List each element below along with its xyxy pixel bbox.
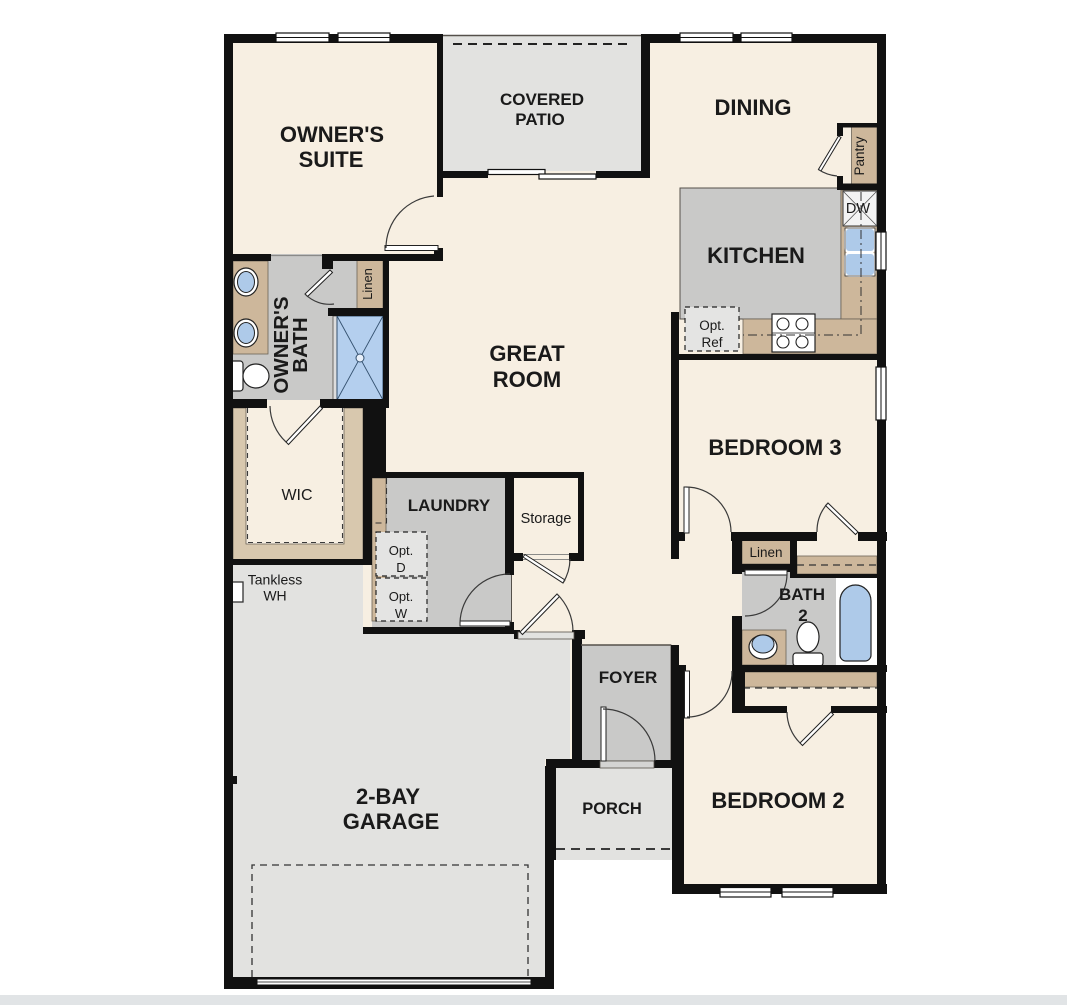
svg-text:Opt.: Opt. <box>699 318 725 333</box>
svg-text:Ref: Ref <box>701 335 722 350</box>
svg-text:KITCHEN: KITCHEN <box>707 243 805 268</box>
svg-text:BATH: BATH <box>289 317 312 372</box>
svg-text:Linen: Linen <box>749 545 782 560</box>
svg-text:GARAGE: GARAGE <box>343 809 440 834</box>
svg-text:2-BAY: 2-BAY <box>356 784 420 809</box>
svg-text:Tankless: Tankless <box>248 572 302 588</box>
svg-text:W: W <box>395 606 408 621</box>
svg-text:DINING: DINING <box>715 95 792 120</box>
svg-text:Pantry: Pantry <box>852 136 867 175</box>
svg-text:FOYER: FOYER <box>599 668 658 687</box>
svg-text:Opt.: Opt. <box>389 543 414 558</box>
svg-text:BATH: BATH <box>779 585 825 604</box>
svg-text:2: 2 <box>798 606 807 625</box>
svg-text:BEDROOM 3: BEDROOM 3 <box>708 435 841 460</box>
svg-text:BEDROOM 2: BEDROOM 2 <box>711 788 844 813</box>
svg-text:ROOM: ROOM <box>493 367 561 392</box>
svg-text:Storage: Storage <box>521 511 572 527</box>
svg-text:D: D <box>396 560 405 575</box>
svg-text:Linen: Linen <box>360 268 375 300</box>
svg-text:COVERED: COVERED <box>500 90 584 109</box>
svg-text:WH: WH <box>263 588 286 604</box>
svg-text:PATIO: PATIO <box>515 110 564 129</box>
svg-text:OWNER'S: OWNER'S <box>280 122 384 147</box>
svg-text:LAUNDRY: LAUNDRY <box>408 496 491 515</box>
svg-text:GREAT: GREAT <box>489 341 565 366</box>
svg-text:WIC: WIC <box>281 487 312 504</box>
svg-text:SUITE: SUITE <box>299 147 364 172</box>
svg-text:PORCH: PORCH <box>582 800 642 818</box>
svg-text:DW: DW <box>846 201 870 217</box>
svg-text:Opt.: Opt. <box>389 589 414 604</box>
